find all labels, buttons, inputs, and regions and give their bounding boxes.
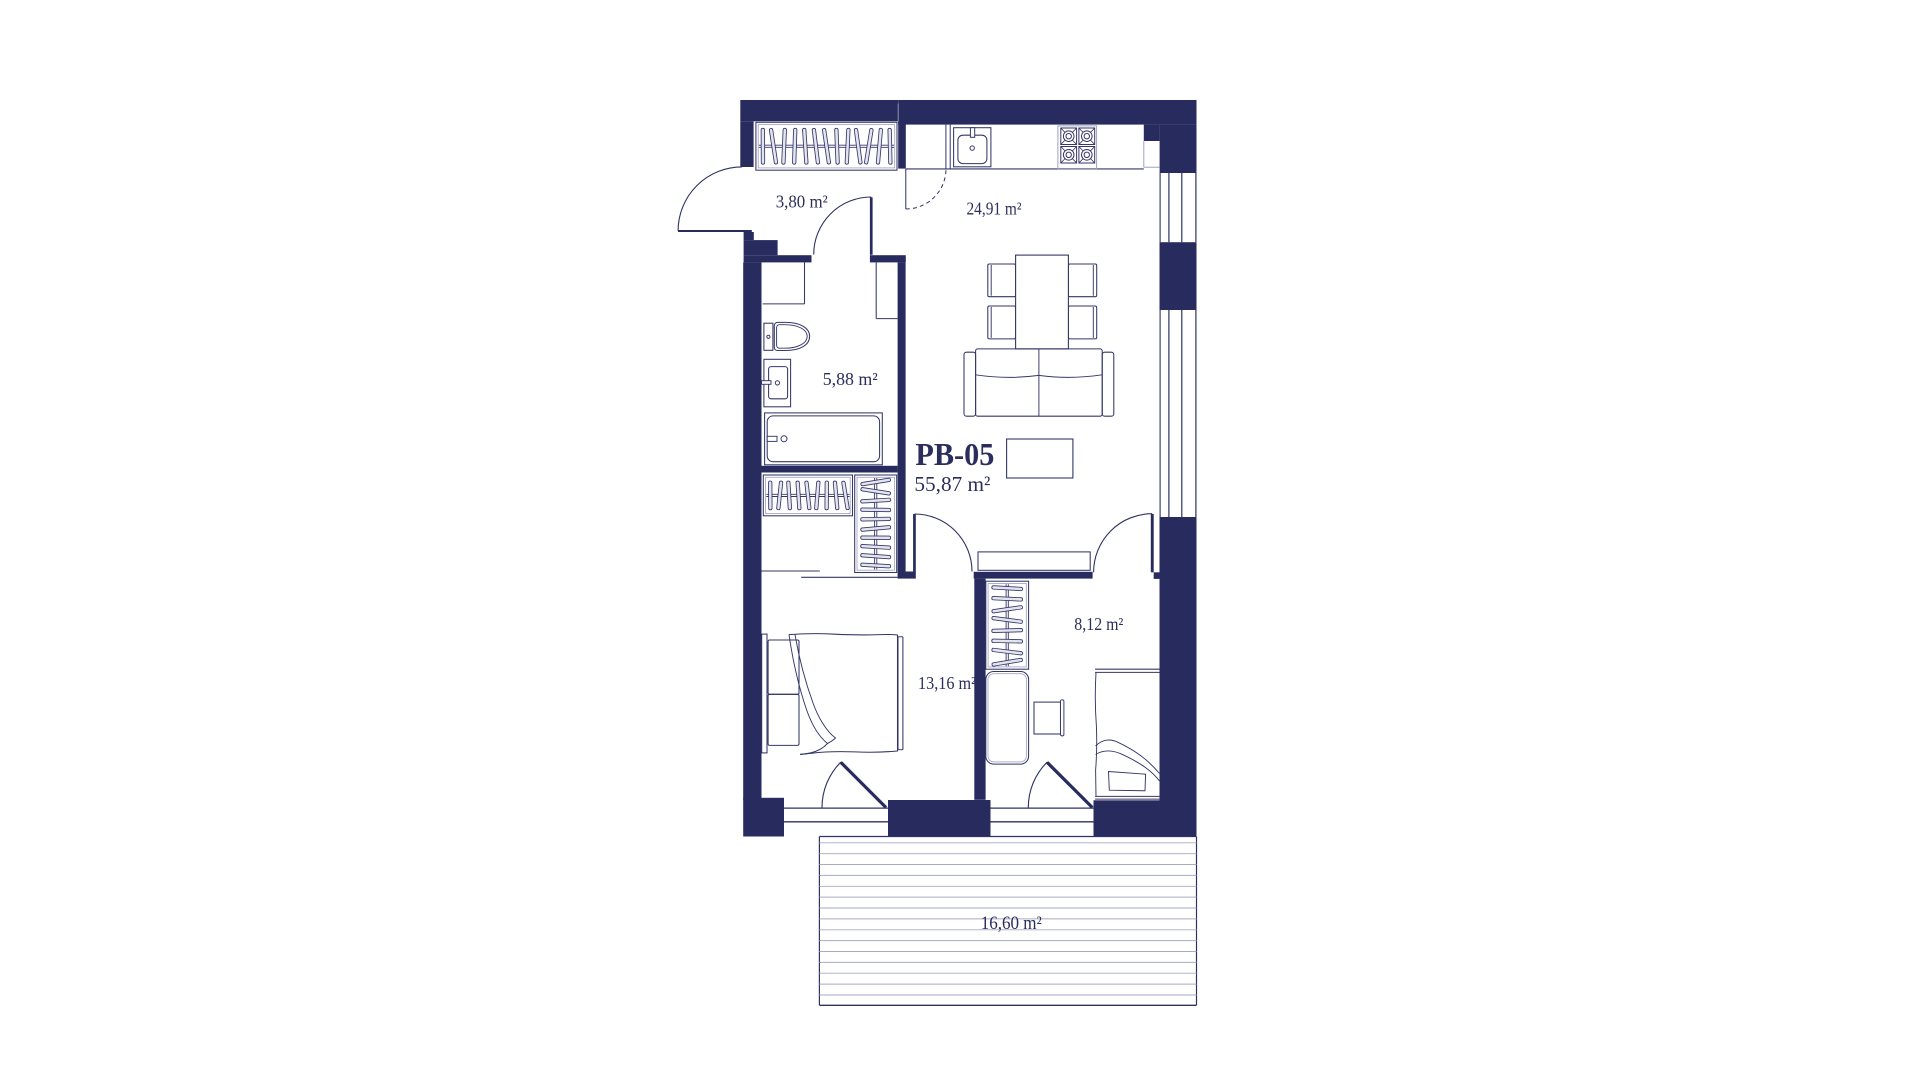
svg-text:13,16 m²: 13,16 m² — [918, 673, 976, 693]
svg-text:24,91 m²: 24,91 m² — [967, 198, 1022, 218]
svg-text:16,60 m²: 16,60 m² — [981, 913, 1042, 934]
svg-text:5,88 m²: 5,88 m² — [823, 369, 878, 389]
svg-text:PB-05: PB-05 — [915, 437, 994, 472]
svg-text:8,12 m²: 8,12 m² — [1074, 614, 1123, 634]
svg-text:3,80 m²: 3,80 m² — [776, 192, 828, 212]
svg-text:55,87 m²: 55,87 m² — [914, 472, 990, 496]
